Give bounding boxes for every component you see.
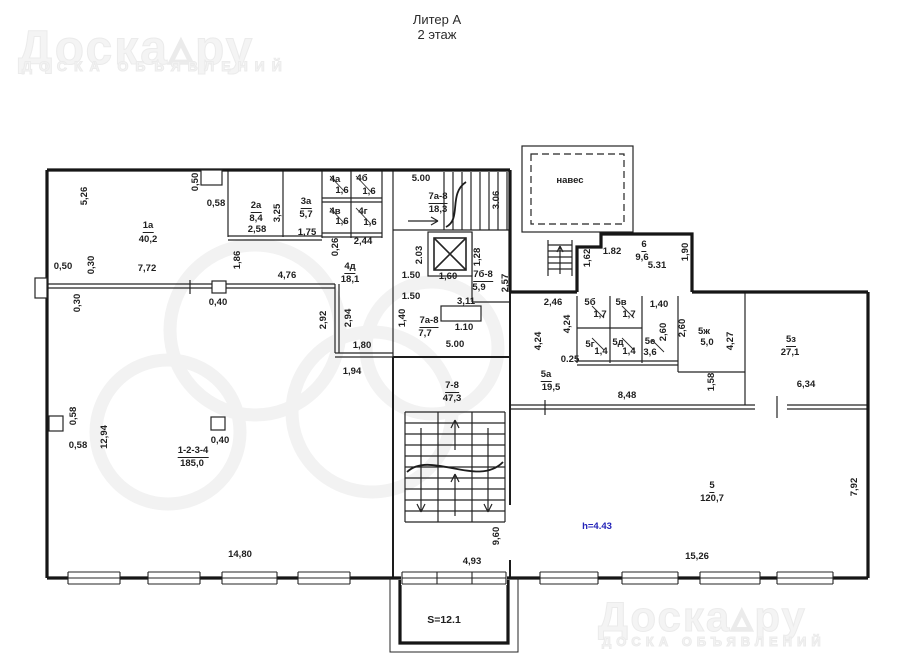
dim-2-92: 2,92 [319,311,329,330]
dim-4-93: 4,93 [463,557,482,567]
room-5b-name: 5б [584,298,595,308]
stair-7a8-area: 18,3 [429,205,448,215]
room-2a-area: 8,4 [249,214,262,224]
dim-0-40-b: 0,40 [211,436,230,446]
dim-2-44: 2,44 [354,237,373,247]
dim-7-72: 7,72 [138,264,157,274]
dim-1-60: 1,60 [439,272,458,282]
dim-3-25: 3,25 [273,204,283,223]
balcony-area: S=12.1 [427,615,461,625]
dim-5-31: 5.31 [648,261,667,271]
dim-4-76: 4,76 [278,271,297,281]
room-4d-area: 18,1 [341,275,360,285]
floor-plan-page: Доска▵ру ДОСКА ОБЪЯВЛЕНИЙ Доска▵ру ДОСКА… [0,0,910,665]
dim-1-86: 1,86 [233,251,243,270]
plan-labels: 1а40,22а8,43а5,74а1,64б1,64в1,64г1,64д18… [0,0,910,665]
dim-5-26: 5,26 [80,187,90,206]
dim-15-26: 15,26 [685,552,709,562]
room-4b-area: 1,6 [362,187,375,197]
dim-1-75: 1,75 [298,228,317,238]
dim-2-60-a: 2,60 [659,323,669,342]
dim-0-58-h: 0,58 [69,441,88,451]
dim-0-58-v: 0,58 [69,407,79,426]
room-3a-area: 5,7 [299,210,312,220]
room-5a-name: 5а [541,370,552,382]
dim-0-58-top: 0,58 [207,199,226,209]
room-5-area: 120,7 [700,494,724,504]
dim-1-80: 1,80 [353,341,372,351]
dim-5-00-mid: 5.00 [446,340,465,350]
dim-6-34: 6,34 [797,380,816,390]
room-1a-name: 1а [143,221,154,233]
room-4g-name: 4г [358,207,367,217]
room-5-name: 5 [709,481,714,493]
dim-1-94: 1,94 [343,367,362,377]
room-1a-area: 40,2 [139,235,158,245]
stair-78-area: 47,3 [443,394,462,404]
dim-0-40-a: 0,40 [209,298,228,308]
room-5e-area: 3,6 [643,348,656,358]
room-5d-area: 1,4 [622,347,635,357]
dim-2-46: 2,46 [544,298,563,308]
room-5b-area: 1,7 [593,310,606,320]
stair-7a8-name: 7а-8 [428,192,447,204]
dim-1-40-mid: 1,40 [398,309,408,328]
room-5g-name: 5г [585,340,594,350]
room-5zh-area: 5,0 [700,338,713,348]
dim-5-00-top: 5.00 [412,174,431,184]
dim-0-26: 0,26 [331,238,341,257]
dim-2-03: 2.03 [415,246,425,265]
dim-1-90: 1,90 [681,243,691,262]
dim-1-10: 1.10 [455,323,474,333]
ceiling-height: h=4.43 [582,522,612,532]
room-5g-area: 1,4 [594,347,607,357]
dim-1-58: 1,58 [707,373,717,392]
room-1234-name: 1-2-3-4 [178,446,209,458]
dim-0-50-left: 0,50 [54,262,73,272]
room-7b8-name: 7б-8 [473,270,493,282]
dim-8-48: 8,48 [618,391,637,401]
dim-2-94: 2,94 [344,309,354,328]
room-7a8s-name: 7а-8 [419,316,438,328]
room-3a-name: 3а [301,197,312,209]
room-5z-area: 27,1 [781,348,800,358]
dim-3-06: 3.06 [492,191,502,210]
dim-3-11: 3,11 [457,297,475,307]
dim-1-50-a: 1.50 [402,271,421,281]
naves-label: навес [556,176,583,186]
dim-9-60: 9,60 [492,527,502,546]
dim-0-25: 0.25 [561,355,580,365]
room-6-name: 6 [641,240,646,252]
dim-4-24-a: 4,24 [534,332,544,351]
dim-0-30-b: 0,30 [73,294,83,313]
stair-78-name: 7-8 [445,381,459,393]
room-1234-area: 185,0 [180,459,204,469]
room-5a-area: 19,5 [542,383,561,393]
room-5v-area: 1,7 [622,310,635,320]
room-7b8-area: 5,9 [472,283,485,293]
room-4b-name: 4б [356,174,367,184]
dim-1-50-b: 1.50 [402,292,421,302]
dim-2-57: 2,57 [501,274,511,293]
dim-1-82: 1.82 [603,247,622,257]
room-4a-area: 1,6 [335,186,348,196]
room-4g-area: 1,6 [363,218,376,228]
room-4d-name: 4д [344,262,355,274]
room-6-area: 9,6 [635,253,648,263]
dim-0-30-a: 0,30 [87,256,97,275]
dim-14-80: 14,80 [228,550,252,560]
dim-1-40-r: 1,40 [650,300,669,310]
dim-1-28: 1,28 [473,248,483,267]
dim-2-60-b: 2,60 [678,319,688,338]
dim-1-62: 1,62 [583,249,593,268]
room-7a8s-area: 7,7 [418,329,431,339]
dim-12-94: 12,94 [100,425,110,449]
room-5e-name: 5е [645,337,656,347]
room-5v-name: 5в [615,298,626,308]
room-5zh-name: 5ж [698,327,710,337]
dim-0-50-top: 0,50 [191,173,201,192]
dim-2-58: 2,58 [248,225,267,235]
room-5z-name: 5з [786,335,796,347]
room-2a-name: 2а [251,201,262,213]
room-4v-area: 1,6 [335,217,348,227]
dim-4-27: 4,27 [726,332,736,351]
dim-7-92: 7,92 [850,478,860,497]
room-4a-name: 4а [330,175,341,185]
dim-4-24-b: 4,24 [563,315,573,334]
